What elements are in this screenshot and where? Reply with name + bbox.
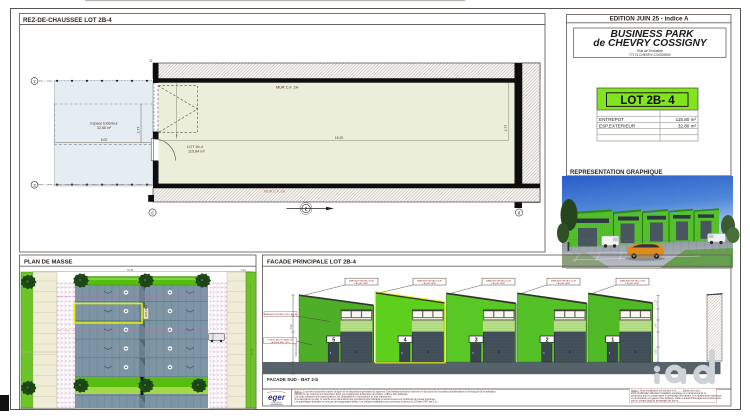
- svg-text:LOT 2B- 4: LOT 2B- 4: [620, 95, 675, 107]
- svg-text:6.00: 6.00: [101, 138, 108, 142]
- svg-text:BARDAGE METALLIQUE LAQUE: BARDAGE METALLIQUE LAQUE: [264, 313, 298, 316]
- svg-text:3.00: 3.00: [655, 349, 658, 354]
- svg-text:Les cotes indiquees sont appro: Les cotes indiquees sont approximatives,…: [295, 395, 393, 398]
- svg-text:eger: eger: [268, 393, 286, 402]
- svg-text:32.85 m²: 32.85 m²: [97, 126, 112, 130]
- svg-text:BARDAGE METALLIQUE: BARDAGE METALLIQUE: [349, 279, 375, 282]
- svg-text:LOT 2B-4: LOT 2B-4: [144, 304, 148, 317]
- svg-text:3.00 A 4.20: 3.00 A 4.20: [294, 343, 298, 357]
- svg-text:LAQUE VERT: LAQUE VERT: [626, 282, 640, 285]
- svg-text:REPRESENTATION GRAPHIQUE: REPRESENTATION GRAPHIQUE: [570, 170, 662, 176]
- svg-text:Nota 2 : Toute modification e: Nota 2 : Toute modification est soumise …: [631, 389, 702, 392]
- svg-text:115.80 m²: 115.80 m²: [676, 117, 697, 122]
- svg-text:PLAN DE MASSE: PLAN DE MASSE: [24, 260, 73, 266]
- svg-text:LAQUEE RAL 7016: LAQUEE RAL 7016: [270, 341, 290, 344]
- svg-text:1.10: 1.10: [655, 300, 658, 305]
- svg-text:ENTREPOT: ENTREPOT: [599, 117, 624, 122]
- svg-text:76.45: 76.45: [127, 268, 134, 272]
- svg-text:pourra etre pris en compte apr: pourra etre pris en compte apres le dema…: [631, 394, 722, 397]
- svg-text:115.84 m²: 115.84 m²: [188, 150, 206, 154]
- svg-text:ou de plomberie ne peuvent etr: ou de plomberie ne peuvent etre deplaces…: [631, 397, 722, 400]
- svg-text:18.20: 18.20: [335, 136, 344, 140]
- svg-text:MUR C.F. 2H: MUR C.F. 2H: [276, 86, 299, 90]
- svg-text:LOT 2b-4: LOT 2b-4: [187, 145, 203, 149]
- svg-text:Espace Exterieur: Espace Exterieur: [90, 122, 118, 126]
- svg-text:Les quadrillages detaillats ne: Les quadrillages detaillats ne sont pas …: [295, 401, 438, 404]
- svg-text:BARDAGE METALLIQUE: BARDAGE METALLIQUE: [417, 279, 443, 282]
- svg-text:BARDAGE METALLIQUE: BARDAGE METALLIQUE: [620, 279, 646, 282]
- svg-text:LAQUE VERT: LAQUE VERT: [355, 282, 369, 285]
- svg-text:32.80 m²: 32.80 m²: [678, 123, 697, 128]
- svg-text:35.10: 35.10: [250, 348, 254, 355]
- svg-text:LAQUE VERT: LAQUE VERT: [423, 282, 437, 285]
- svg-text:77173 CHEVRY-COSSIGNY: 77173 CHEVRY-COSSIGNY: [629, 53, 672, 57]
- svg-text:D: D: [150, 59, 153, 63]
- svg-text:1.40: 1.40: [655, 323, 658, 328]
- svg-text:EDITION JUIN 25 - indice A: EDITION JUIN 25 - indice A: [610, 15, 689, 22]
- svg-text:5: 5: [332, 337, 335, 343]
- svg-text:4: 4: [404, 337, 407, 343]
- svg-text:1: 1: [611, 337, 614, 343]
- svg-text:pris en compte jusqu'au demarr: pris en compte jusqu'au demarrage des lo…: [631, 400, 680, 403]
- svg-text:7.50: 7.50: [240, 268, 246, 272]
- svg-text:Si le faconde sur le plan, le: Si le faconde sur le plan, le marche et …: [295, 398, 436, 401]
- svg-text:5.93: 5.93: [289, 324, 293, 330]
- svg-text:BARDAGE METALLIQUE: BARDAGE METALLIQUE: [551, 279, 577, 282]
- svg-text:Nota 1 : Le present document: Nota 1 : Le present document exprime la …: [295, 390, 497, 393]
- svg-text:de CHEVRY COSSIGNY: de CHEVRY COSSIGNY: [593, 38, 708, 49]
- svg-text:MUR C.F. 2H: MUR C.F. 2H: [264, 190, 286, 194]
- svg-text:BARDAGE METALLIQUE: BARDAGE METALLIQUE: [486, 279, 512, 282]
- svg-text:2.77: 2.77: [504, 125, 508, 132]
- svg-text:3: 3: [475, 337, 478, 343]
- svg-text:REZ-DE-CHAUSSEE LOT 2B-4: REZ-DE-CHAUSSEE LOT 2B-4: [23, 17, 112, 24]
- svg-text:LAQUE VERT: LAQUE VERT: [557, 282, 571, 285]
- svg-text:LAQUE VERT: LAQUE VERT: [492, 282, 506, 285]
- svg-text:ESP.EXTERIEUR: ESP.EXTERIEUR: [599, 123, 636, 128]
- svg-text:2.77: 2.77: [137, 127, 141, 134]
- svg-text:FACADE SUD - BAT 2-b: FACADE SUD - BAT 2-b: [267, 377, 318, 382]
- svg-text:FACADE PRINCIPALE LOT 2B-4: FACADE PRINCIPALE LOT 2B-4: [267, 260, 357, 266]
- svg-text:(MFVE) ne qui concerne les dim: (MFVE) ne qui concerne les dimensions fi…: [295, 393, 409, 396]
- svg-text:d'une modification affectant l: d'une modification affectant l'installat…: [631, 392, 707, 395]
- svg-text:2: 2: [546, 337, 549, 343]
- svg-text:F: F: [176, 134, 178, 138]
